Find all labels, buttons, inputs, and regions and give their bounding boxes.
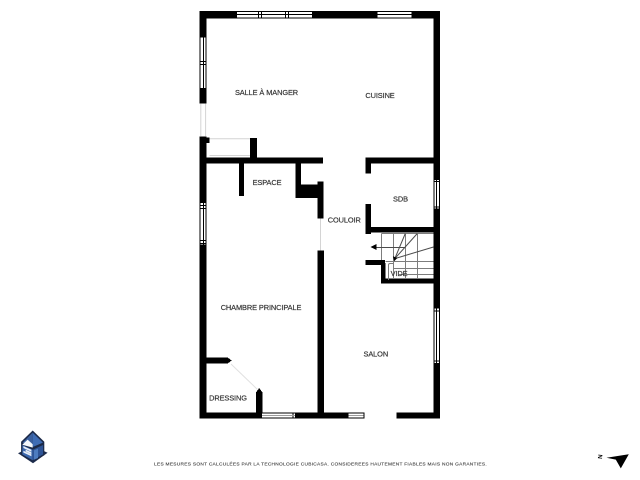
svg-text:N: N [596,454,602,459]
svg-text:SALON: SALON [364,350,389,359]
svg-text:DRESSING: DRESSING [209,394,247,403]
svg-text:VIDE: VIDE [391,269,408,278]
svg-text:LES MESURES SONT CALCULÉES PAR: LES MESURES SONT CALCULÉES PAR LA TECHNO… [154,461,487,468]
svg-text:CHAMBRE PRINCIPALE: CHAMBRE PRINCIPALE [221,303,302,312]
svg-text:COULOIR: COULOIR [328,216,361,225]
svg-text:ESPACE: ESPACE [253,178,282,187]
svg-text:CUISINE: CUISINE [365,91,394,100]
svg-text:SALLE À MANGER: SALLE À MANGER [235,88,298,97]
svg-text:SDB: SDB [393,194,408,203]
